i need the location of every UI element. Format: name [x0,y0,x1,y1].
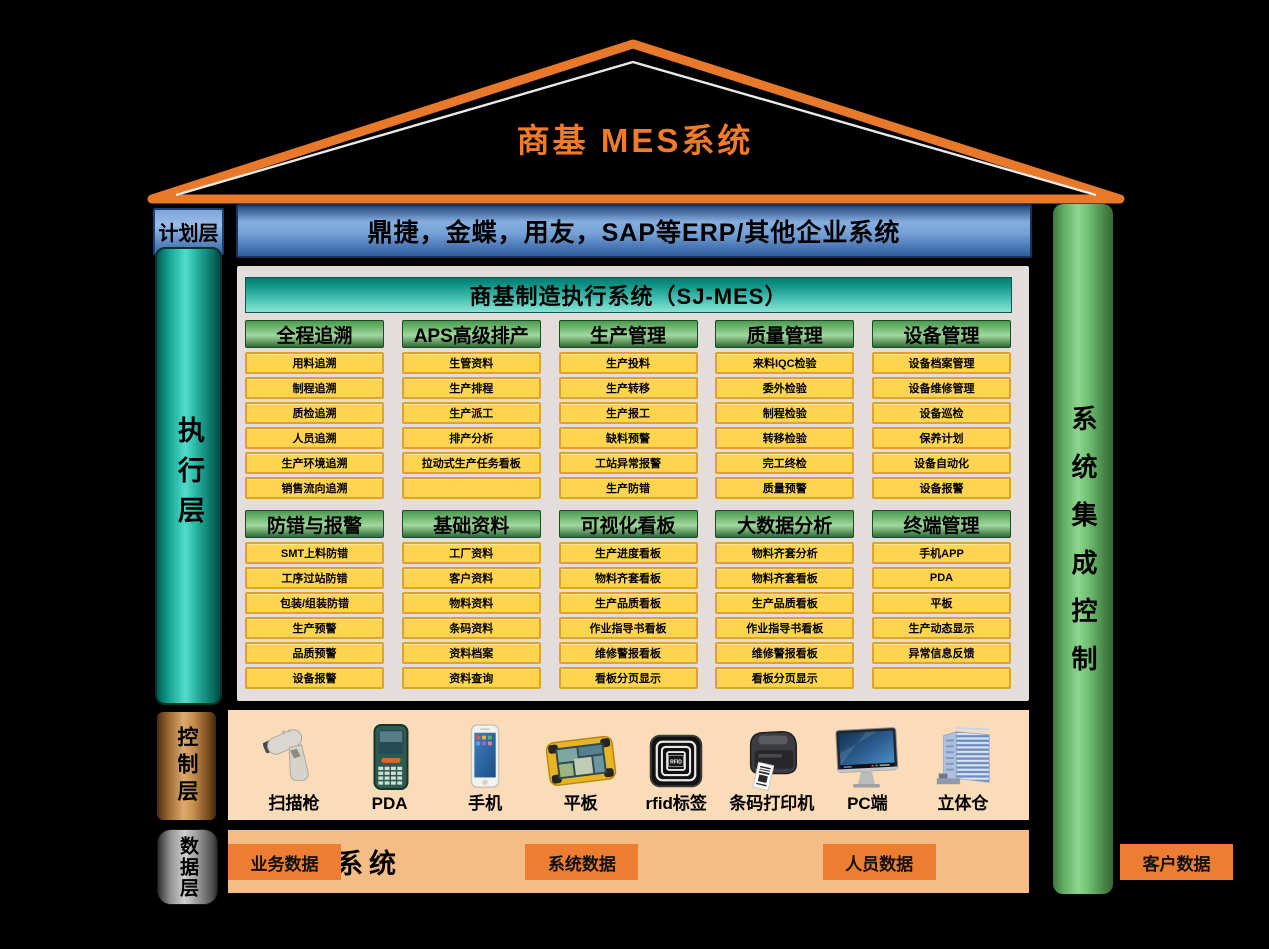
module-group: 防错与报警 SMT上料防错工序过站防错包装/组装防错生产预警品质预警设备报警 [245,510,384,689]
module-cell: 物料齐套看板 [715,567,854,589]
roof-outline [0,0,1269,210]
rfid-chip-text: RFID [670,759,682,765]
module-cell: 拉动式生产任务看板 [402,452,541,474]
module-cell: 物料齐套分析 [715,542,854,564]
device-phone: 手机 [441,716,529,820]
module-cell [402,477,541,499]
system-integration-bar: 系统集成控制 [1053,204,1113,894]
module-cell: 委外检验 [715,377,854,399]
group-cells: 工厂资料客户资料物料资料条码资料资料档案资料查询 [402,542,541,689]
group-header: 大数据分析 [715,510,854,538]
module-cell: 设备巡检 [872,402,1011,424]
device-pda: PDA [346,716,434,820]
module-cell: 生产预警 [245,617,384,639]
phone-icon [460,718,510,792]
module-group: 终端管理 手机APPPDA平板生产动态显示异常信息反馈 [872,510,1011,689]
module-cell: 平板 [872,592,1011,614]
module-group: 可视化看板 生产进度看板物料齐套看板生产品质看板作业指导书看板维修警报看板看板分… [559,510,698,689]
module-cell: 质量预警 [715,477,854,499]
module-cell: 来料IQC检验 [715,352,854,374]
device-scanner: 扫描枪 [250,716,338,820]
erp-systems-bar: 鼎捷，金蝶，用友，SAP等ERP/其他企业系统 [236,204,1032,258]
device-label: 条码打印机 [729,794,814,814]
module-cell: 生产品质看板 [715,592,854,614]
device-label: 手机 [468,794,502,814]
module-cell: 生管资料 [402,352,541,374]
system-integration-label: 系统集成控制 [1070,405,1096,693]
module-cell: 质检追溯 [245,402,384,424]
group-cells: 生产投料生产转移生产报工缺料预警工站异常报警生产防错 [559,352,698,499]
module-group: 生产管理 生产投料生产转移生产报工缺料预警工站异常报警生产防错 [559,320,698,499]
module-cell: 生产派工 [402,402,541,424]
data-button-personnel: 人员数据 [823,844,936,880]
module-group: APS高级排产 生管资料生产排程生产派工排产分析拉动式生产任务看板 [402,320,541,499]
module-cell: 保养计划 [872,427,1011,449]
module-cell: 生产环境追溯 [245,452,384,474]
module-cell: 生产转移 [559,377,698,399]
module-cell: SMT上料防错 [245,542,384,564]
warehouse-icon [928,718,998,792]
module-cell: 生产防错 [559,477,698,499]
data-buttons-row: 业务数据 系统数据 人员数据 客户数据 [228,844,1233,880]
module-cell: 工厂资料 [402,542,541,564]
module-cell: 作业指导书看板 [715,617,854,639]
data-button-system: 系统数据 [525,844,638,880]
diagram-title: 商基 MES系统 [385,114,885,162]
module-cell: 排产分析 [402,427,541,449]
device-label: PDA [372,794,408,814]
group-cells: 设备档案管理设备维修管理设备巡检保养计划设备自动化设备报警 [872,352,1011,499]
device-label: 平板 [564,794,598,814]
device-label: rfid标签 [646,794,707,814]
group-cells: 物料齐套分析物料齐套看板生产品质看板作业指导书看板维修警报看板看板分页显示 [715,542,854,689]
module-cell: 异常信息反馈 [872,642,1011,664]
module-cell: 生产排程 [402,377,541,399]
device-label: 扫描枪 [269,794,320,814]
group-header: 生产管理 [559,320,698,348]
module-group: 基础资料 工厂资料客户资料物料资料条码资料资料档案资料查询 [402,510,541,689]
group-cells: 用料追溯制程追溯质检追溯人员追溯生产环境追溯销售流向追溯 [245,352,384,499]
data-layer-label: 数据层 [157,829,218,905]
group-header: 设备管理 [872,320,1011,348]
module-group: 设备管理 设备档案管理设备维修管理设备巡检保养计划设备自动化设备报警 [872,320,1011,499]
device-rfid-tag: RFID rfid标签 [632,716,720,820]
module-group: 大数据分析 物料齐套分析物料齐套看板生产品质看板作业指导书看板维修警报看板看板分… [715,510,854,689]
data-button-business: 业务数据 [228,844,341,880]
group-header: 全程追溯 [245,320,384,348]
module-cell: 物料资料 [402,592,541,614]
module-cell: 转移检验 [715,427,854,449]
group-header: 基础资料 [402,510,541,538]
module-cell: 生产报工 [559,402,698,424]
module-cell: 生产动态显示 [872,617,1011,639]
control-layer-label: 控制层 [157,712,216,820]
data-layer-label-text: 数据层 [178,836,197,899]
sj-mes-header: 商基制造执行系统（SJ-MES） [245,277,1012,313]
module-cell: 资料查询 [402,667,541,689]
execution-panel: 商基制造执行系统（SJ-MES） 全程追溯 用料追溯制程追溯质检追溯人员追溯生产… [237,266,1029,701]
module-cell: 设备维修管理 [872,377,1011,399]
group-header: 终端管理 [872,510,1011,538]
group-cells: 手机APPPDA平板生产动态显示异常信息反馈 [872,542,1011,689]
group-header: 可视化看板 [559,510,698,538]
module-cell: 完工终检 [715,452,854,474]
module-cell: 资料档案 [402,642,541,664]
scanner-icon [263,718,325,792]
module-cell: 设备报警 [245,667,384,689]
data-button-customer: 客户数据 [1120,844,1233,880]
modules-row-1: 全程追溯 用料追溯制程追溯质检追溯人员追溯生产环境追溯销售流向追溯 APS高级排… [245,320,1011,499]
device-label: PC端 [847,794,888,814]
module-group: 质量管理 来料IQC检验委外检验制程检验转移检验完工终检质量预警 [715,320,854,499]
module-group: 全程追溯 用料追溯制程追溯质检追溯人员追溯生产环境追溯销售流向追溯 [245,320,384,499]
module-cell: 生产品质看板 [559,592,698,614]
module-cell: 工站异常报警 [559,452,698,474]
module-cell: 销售流向追溯 [245,477,384,499]
module-cell: 设备报警 [872,477,1011,499]
execution-layer-label-text: 执行层 [175,416,202,536]
device-tablet: 平板 [537,716,625,820]
module-cell: 缺料预警 [559,427,698,449]
module-cell: 生产进度看板 [559,542,698,564]
module-cell: 用料追溯 [245,352,384,374]
device-label: 立体仓 [937,794,988,814]
control-devices-panel: 扫描枪 PDA [228,710,1029,820]
rfid-icon: RFID [646,718,706,792]
group-header: 质量管理 [715,320,854,348]
modules-row-2: 防错与报警 SMT上料防错工序过站防错包装/组装防错生产预警品质预警设备报警 基… [245,510,1011,689]
module-cell: 维修警报看板 [715,642,854,664]
module-cell: 条码资料 [402,617,541,639]
group-cells: 生管资料生产排程生产派工排产分析拉动式生产任务看板 [402,352,541,499]
module-cell: 客户资料 [402,567,541,589]
module-cell [872,667,1011,689]
group-cells: SMT上料防错工序过站防错包装/组装防错生产预警品质预警设备报警 [245,542,384,689]
module-cell: 制程追溯 [245,377,384,399]
module-cell: PDA [872,567,1011,589]
module-cell: 设备自动化 [872,452,1011,474]
group-header: 防错与报警 [245,510,384,538]
mes-architecture-diagram: 商基 MES系统 计划层 鼎捷，金蝶，用友，SAP等ERP/其他企业系统 执行层… [0,0,1269,949]
module-cell: 工序过站防错 [245,567,384,589]
execution-layer-label: 执行层 [155,247,222,705]
pda-icon [362,718,418,792]
module-cell: 维修警报看板 [559,642,698,664]
module-cell: 看板分页显示 [715,667,854,689]
tablet-icon [543,718,619,792]
device-warehouse: 立体仓 [919,716,1007,820]
device-pc: PC端 [823,716,911,820]
module-cell: 物料齐套看板 [559,567,698,589]
module-cell: 生产投料 [559,352,698,374]
module-cell: 设备档案管理 [872,352,1011,374]
control-layer-label-text: 控制层 [176,726,197,807]
group-cells: 生产进度看板物料齐套看板生产品质看板作业指导书看板维修警报看板看板分页显示 [559,542,698,689]
group-cells: 来料IQC检验委外检验制程检验转移检验完工终检质量预警 [715,352,854,499]
module-cell: 作业指导书看板 [559,617,698,639]
module-cell: 包装/组装防错 [245,592,384,614]
device-barcode-printer: 条码打印机 [728,716,816,820]
pc-icon [831,718,903,792]
module-cell: 制程检验 [715,402,854,424]
module-cell: 手机APP [872,542,1011,564]
module-cell: 人员追溯 [245,427,384,449]
module-cell: 品质预警 [245,642,384,664]
module-cell: 看板分页显示 [559,667,698,689]
group-header: APS高级排产 [402,320,541,348]
barcode-printer-icon [736,718,808,792]
